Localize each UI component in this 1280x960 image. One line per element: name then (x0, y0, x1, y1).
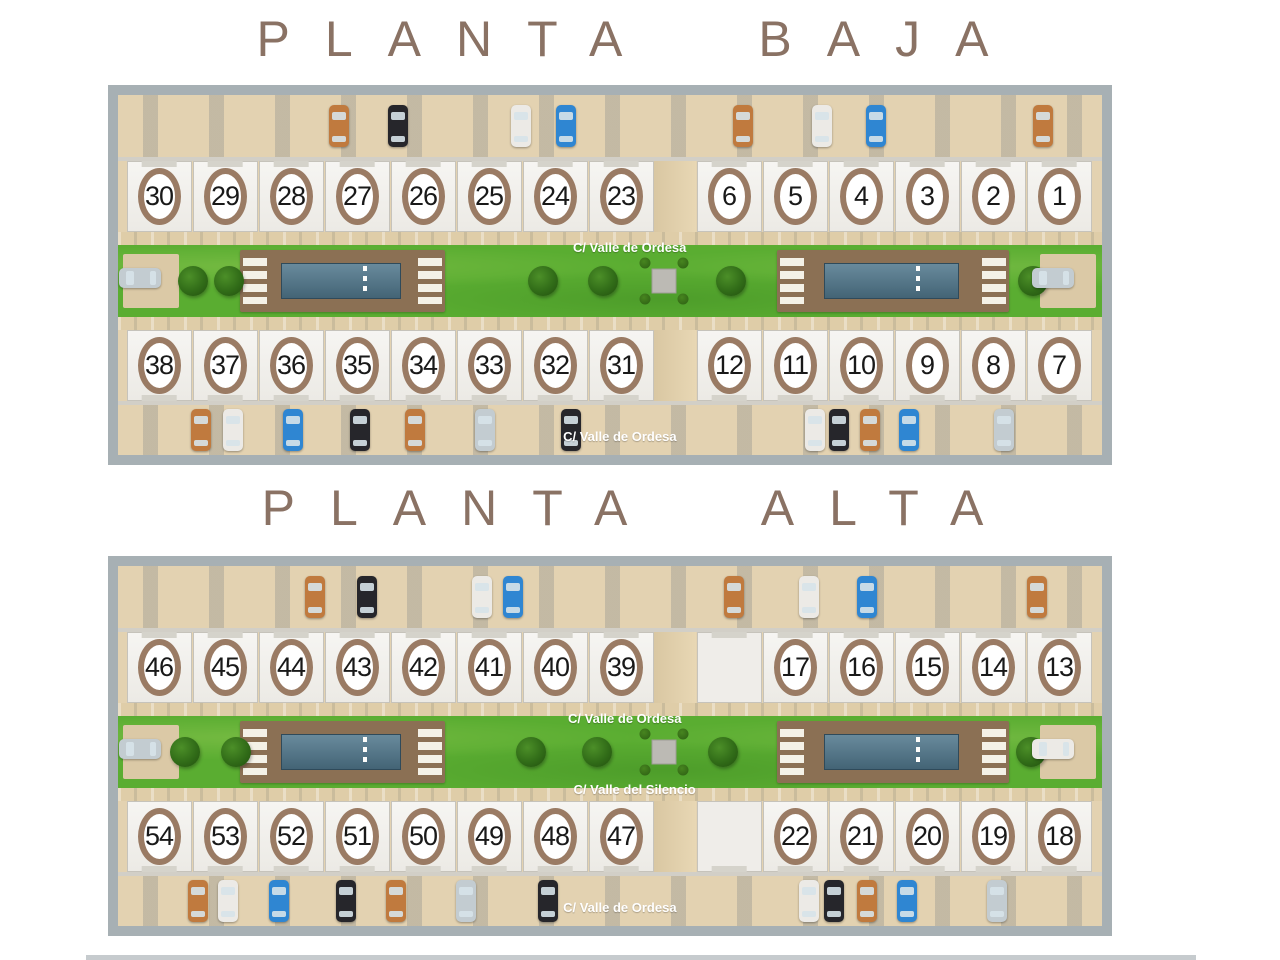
car-icon (350, 409, 370, 451)
car-icon (829, 409, 849, 451)
unit-number: 33 (475, 350, 503, 381)
unit-group-top-right: 1716151413 (696, 632, 1092, 703)
unit-number: 18 (1045, 821, 1073, 852)
unit-21: 21 (829, 801, 894, 872)
car-icon (866, 105, 886, 147)
unit-6: 6 (697, 161, 762, 232)
unit-number-ring: 26 (402, 168, 445, 225)
unit-20: 20 (895, 801, 960, 872)
unit-number: 35 (343, 350, 371, 381)
unit-number: 29 (211, 181, 239, 212)
center-walkway (654, 330, 696, 401)
unit-number: 37 (211, 350, 239, 381)
unit-19: 19 (961, 801, 1026, 872)
unit-36: 36 (259, 330, 324, 401)
ground-margin (1092, 330, 1102, 401)
unit-number-ring: 27 (336, 168, 379, 225)
unit-number: 31 (607, 350, 635, 381)
ground-margin (1092, 161, 1102, 232)
unit-number: 27 (343, 181, 371, 212)
car-icon (987, 880, 1007, 922)
units-row-bottom: 5453525150494847 2221201918 (118, 801, 1102, 872)
unit-number: 39 (607, 652, 635, 683)
unit-38: 38 (127, 330, 192, 401)
unit-number: 44 (277, 652, 305, 683)
unit-23: 23 (589, 161, 654, 232)
unit-number: 3 (920, 181, 934, 212)
unit-28: 28 (259, 161, 324, 232)
ground-margin (1092, 801, 1102, 872)
unit-number: 19 (979, 821, 1007, 852)
unit-number-ring: 38 (138, 337, 181, 394)
unit-number-ring: 47 (600, 808, 643, 865)
unit-number-ring: 20 (906, 808, 949, 865)
unit-number-ring: 28 (270, 168, 313, 225)
driveway-strip-bottom: C/ Valle de Ordesa (118, 401, 1102, 455)
unit-number: 32 (541, 350, 569, 381)
unit-number-ring: 13 (1038, 639, 1081, 696)
unit-number-ring: 15 (906, 639, 949, 696)
ground-margin (118, 161, 126, 232)
unit-number-ring: 25 (468, 168, 511, 225)
unit-group-top-left: 3029282726252423 (126, 161, 654, 232)
unit-number: 41 (475, 652, 503, 683)
unit-45: 45 (193, 632, 258, 703)
unit-52: 52 (259, 801, 324, 872)
car-icon (456, 880, 476, 922)
tree-icon (678, 294, 689, 305)
car-icon (724, 576, 744, 618)
unit-number: 9 (920, 350, 934, 381)
unit-54: 54 (127, 801, 192, 872)
tree-icon (178, 266, 208, 296)
unit-17: 17 (763, 632, 828, 703)
unit-7: 7 (1027, 330, 1092, 401)
tree-icon (221, 737, 251, 767)
unit-number: 53 (211, 821, 239, 852)
car-icon (897, 880, 917, 922)
car-icon (857, 880, 877, 922)
road-edge-bottom (86, 955, 1196, 960)
unit-number-ring: 7 (1038, 337, 1081, 394)
unit-number-ring: 12 (708, 337, 751, 394)
car-icon (994, 409, 1014, 451)
unit-26: 26 (391, 161, 456, 232)
unit-15: 15 (895, 632, 960, 703)
unit-16: 16 (829, 632, 894, 703)
units-row-top: 3029282726252423 654321 (118, 161, 1102, 232)
pool-lane-line (363, 737, 367, 767)
unit-18: 18 (1027, 801, 1092, 872)
car-icon (733, 105, 753, 147)
unit-number: 40 (541, 652, 569, 683)
car-icon (386, 880, 406, 922)
unit-number: 2 (986, 181, 1000, 212)
pool-deck-left (240, 250, 445, 312)
unit-number-ring: 14 (972, 639, 1015, 696)
unit-number-ring: 23 (600, 168, 643, 225)
unit-50: 50 (391, 801, 456, 872)
unit-46: 46 (127, 632, 192, 703)
car-icon (812, 105, 832, 147)
unit-number-ring: 10 (840, 337, 883, 394)
car-icon (357, 576, 377, 618)
unit-number: 20 (913, 821, 941, 852)
unit-2: 2 (961, 161, 1026, 232)
unit-number: 46 (145, 652, 173, 683)
pool-deck-right (777, 721, 1008, 783)
unit-4: 4 (829, 161, 894, 232)
unit-number-ring: 21 (840, 808, 883, 865)
sun-loungers-icon (982, 258, 1006, 304)
unit-53: 53 (193, 801, 258, 872)
unit-number-ring: 40 (534, 639, 577, 696)
unit-number-ring: 30 (138, 168, 181, 225)
car-icon (1032, 268, 1074, 288)
pool-deck-right (777, 250, 1008, 312)
car-icon (119, 739, 161, 759)
unit-47: 47 (589, 801, 654, 872)
unit-48: 48 (523, 801, 588, 872)
tree-icon (678, 258, 689, 269)
unit-13: 13 (1027, 632, 1092, 703)
unit-22: 22 (763, 801, 828, 872)
car-icon (388, 105, 408, 147)
unit-32: 32 (523, 330, 588, 401)
unit-1: 1 (1027, 161, 1092, 232)
unit-number-ring: 48 (534, 808, 577, 865)
unit-number-ring: 4 (840, 168, 883, 225)
unit-number: 14 (979, 652, 1007, 683)
street-label-ordesa-center: C/ Valle de Ordesa (568, 711, 681, 726)
sun-loungers-icon (780, 258, 804, 304)
unit-number: 49 (475, 821, 503, 852)
unit-number-ring: 36 (270, 337, 313, 394)
unit-10: 10 (829, 330, 894, 401)
pool-lane-line (916, 266, 920, 296)
unit-8: 8 (961, 330, 1026, 401)
driveway-strip-bottom: C/ Valle de Ordesa (118, 872, 1102, 926)
sun-loungers-icon (982, 729, 1006, 775)
street-label-ordesa-bottom: C/ Valle de Ordesa (563, 429, 676, 444)
units-row-top: 4645444342414039 1716151413 (118, 632, 1102, 703)
car-icon (191, 409, 211, 451)
unit-number: 23 (607, 181, 635, 212)
car-icon (860, 409, 880, 451)
car-icon (329, 105, 349, 147)
car-icon (799, 880, 819, 922)
unit-blank (697, 801, 762, 872)
unit-group-top-right: 654321 (696, 161, 1092, 232)
car-icon (1032, 739, 1074, 759)
unit-number-ring: 33 (468, 337, 511, 394)
unit-number-ring: 49 (468, 808, 511, 865)
ground-margin (118, 330, 126, 401)
unit-number: 10 (847, 350, 875, 381)
tree-icon (708, 737, 738, 767)
garden-strip: C/ Valle de Ordesa (118, 245, 1102, 317)
unit-number: 17 (781, 652, 809, 683)
unit-5: 5 (763, 161, 828, 232)
unit-number: 54 (145, 821, 173, 852)
car-icon (503, 576, 523, 618)
unit-41: 41 (457, 632, 522, 703)
plaza-square (652, 740, 677, 765)
center-walkway (654, 632, 696, 703)
unit-number: 38 (145, 350, 173, 381)
unit-number-ring: 46 (138, 639, 181, 696)
tree-icon (640, 258, 651, 269)
center-walkway (654, 801, 696, 872)
unit-51: 51 (325, 801, 390, 872)
unit-number-ring: 44 (270, 639, 313, 696)
unit-group-bottom-right: 121110987 (696, 330, 1092, 401)
unit-number: 7 (1052, 350, 1066, 381)
unit-number: 51 (343, 821, 371, 852)
unit-44: 44 (259, 632, 324, 703)
unit-number-ring: 29 (204, 168, 247, 225)
unit-number: 15 (913, 652, 941, 683)
tree-icon (528, 266, 558, 296)
sun-loungers-icon (418, 729, 442, 775)
unit-number-ring: 52 (270, 808, 313, 865)
car-icon (857, 576, 877, 618)
unit-number-ring: 2 (972, 168, 1015, 225)
tree-icon (640, 729, 651, 740)
unit-number-ring: 11 (774, 337, 817, 394)
sun-loungers-icon (418, 258, 442, 304)
unit-number-ring: 8 (972, 337, 1015, 394)
unit-number: 21 (847, 821, 875, 852)
swimming-pool (281, 263, 401, 299)
unit-number: 52 (277, 821, 305, 852)
unit-number: 6 (722, 181, 736, 212)
unit-number: 11 (782, 350, 808, 381)
unit-43: 43 (325, 632, 390, 703)
unit-27: 27 (325, 161, 390, 232)
car-icon (223, 409, 243, 451)
tree-icon (588, 266, 618, 296)
unit-number: 50 (409, 821, 437, 852)
unit-number: 16 (847, 652, 875, 683)
tree-icon (678, 729, 689, 740)
unit-number: 47 (607, 821, 635, 852)
car-icon (305, 576, 325, 618)
unit-number-ring: 3 (906, 168, 949, 225)
unit-number-ring: 37 (204, 337, 247, 394)
driveway-strip-top (118, 566, 1102, 632)
unit-number-ring: 42 (402, 639, 445, 696)
car-icon (218, 880, 238, 922)
unit-number: 22 (781, 821, 809, 852)
unit-37: 37 (193, 330, 258, 401)
garden-strip: C/ Valle de Ordesa C/ Valle del Silencio (118, 716, 1102, 788)
sun-loungers-icon (780, 729, 804, 775)
car-icon (538, 880, 558, 922)
units-row-bottom: 3837363534333231 121110987 (118, 330, 1102, 401)
pool-lane-line (363, 266, 367, 296)
unit-39: 39 (589, 632, 654, 703)
unit-number-ring: 54 (138, 808, 181, 865)
unit-number: 42 (409, 652, 437, 683)
swimming-pool (281, 734, 401, 770)
unit-number: 8 (986, 350, 1000, 381)
unit-group-bottom-left: 5453525150494847 (126, 801, 654, 872)
unit-group-bottom-left: 3837363534333231 (126, 330, 654, 401)
unit-number-ring: 16 (840, 639, 883, 696)
unit-number: 28 (277, 181, 305, 212)
unit-number-ring: 31 (600, 337, 643, 394)
car-icon (805, 409, 825, 451)
car-icon (799, 576, 819, 618)
street-label-ordesa-center: C/ Valle de Ordesa (573, 240, 686, 255)
unit-12: 12 (697, 330, 762, 401)
unit-number-ring: 18 (1038, 808, 1081, 865)
unit-group-bottom-right: 2221201918 (696, 801, 1092, 872)
unit-35: 35 (325, 330, 390, 401)
tree-icon (582, 737, 612, 767)
unit-number-ring: 43 (336, 639, 379, 696)
car-icon (405, 409, 425, 451)
unit-number-ring: 9 (906, 337, 949, 394)
unit-number: 45 (211, 652, 239, 683)
tree-icon (170, 737, 200, 767)
unit-number-ring: 32 (534, 337, 577, 394)
car-icon (475, 409, 495, 451)
center-walkway (654, 161, 696, 232)
unit-number: 30 (145, 181, 173, 212)
unit-49: 49 (457, 801, 522, 872)
unit-number: 13 (1045, 652, 1073, 683)
unit-3: 3 (895, 161, 960, 232)
pool-lane-line (916, 737, 920, 767)
unit-number: 43 (343, 652, 371, 683)
unit-11: 11 (763, 330, 828, 401)
sun-loungers-icon (243, 258, 267, 304)
unit-number-ring: 22 (774, 808, 817, 865)
unit-number-ring: 41 (468, 639, 511, 696)
driveway-strip-top (118, 95, 1102, 161)
street-label-ordesa-bottom: C/ Valle de Ordesa (563, 900, 676, 915)
car-icon (824, 880, 844, 922)
street-label-silencio: C/ Valle del Silencio (574, 782, 696, 797)
unit-25: 25 (457, 161, 522, 232)
unit-blank (697, 632, 762, 703)
tree-icon (214, 266, 244, 296)
car-icon (283, 409, 303, 451)
planta-alta-plan: 4645444342414039 1716151413 (108, 556, 1112, 936)
unit-number: 26 (409, 181, 437, 212)
car-icon (511, 105, 531, 147)
unit-number: 34 (409, 350, 437, 381)
unit-number-ring: 6 (708, 168, 751, 225)
car-icon (1033, 105, 1053, 147)
unit-number-ring: 45 (204, 639, 247, 696)
pool-deck-left (240, 721, 445, 783)
tree-icon (640, 765, 651, 776)
unit-number-ring: 19 (972, 808, 1015, 865)
unit-number-ring: 24 (534, 168, 577, 225)
unit-30: 30 (127, 161, 192, 232)
unit-number-ring: 35 (336, 337, 379, 394)
garden-fringe (118, 317, 1102, 330)
unit-24: 24 (523, 161, 588, 232)
ground-margin (118, 632, 126, 703)
unit-31: 31 (589, 330, 654, 401)
unit-number-ring: 5 (774, 168, 817, 225)
car-icon (188, 880, 208, 922)
unit-14: 14 (961, 632, 1026, 703)
unit-33: 33 (457, 330, 522, 401)
unit-34: 34 (391, 330, 456, 401)
car-icon (472, 576, 492, 618)
unit-42: 42 (391, 632, 456, 703)
car-icon (899, 409, 919, 451)
unit-number: 24 (541, 181, 569, 212)
unit-40: 40 (523, 632, 588, 703)
unit-number-ring: 1 (1038, 168, 1081, 225)
unit-29: 29 (193, 161, 258, 232)
unit-number: 4 (854, 181, 868, 212)
unit-9: 9 (895, 330, 960, 401)
unit-number: 36 (277, 350, 305, 381)
car-icon (556, 105, 576, 147)
unit-number-ring: 34 (402, 337, 445, 394)
unit-number: 48 (541, 821, 569, 852)
car-icon (119, 268, 161, 288)
car-icon (1027, 576, 1047, 618)
site-plan-page: PLANTA BAJA 3029282726252423 654321 (0, 0, 1280, 960)
unit-number: 5 (788, 181, 802, 212)
ground-margin (1092, 632, 1102, 703)
tree-icon (640, 294, 651, 305)
unit-number-ring: 53 (204, 808, 247, 865)
unit-number: 1 (1052, 181, 1066, 212)
unit-number-ring: 17 (774, 639, 817, 696)
ground-margin (118, 801, 126, 872)
tree-icon (516, 737, 546, 767)
planta-baja-title: PLANTA BAJA (0, 14, 1280, 64)
unit-number: 12 (715, 350, 743, 381)
tree-icon (716, 266, 746, 296)
car-icon (336, 880, 356, 922)
tree-icon (678, 765, 689, 776)
plaza-square (652, 269, 677, 294)
swimming-pool (824, 263, 959, 299)
swimming-pool (824, 734, 959, 770)
unit-group-top-left: 4645444342414039 (126, 632, 654, 703)
unit-number-ring: 39 (600, 639, 643, 696)
planta-alta-title: PLANTA ALTA (0, 483, 1280, 533)
unit-number-ring: 51 (336, 808, 379, 865)
unit-number: 25 (475, 181, 503, 212)
car-icon (269, 880, 289, 922)
unit-number-ring: 50 (402, 808, 445, 865)
planta-baja-plan: 3029282726252423 654321 (108, 85, 1112, 465)
